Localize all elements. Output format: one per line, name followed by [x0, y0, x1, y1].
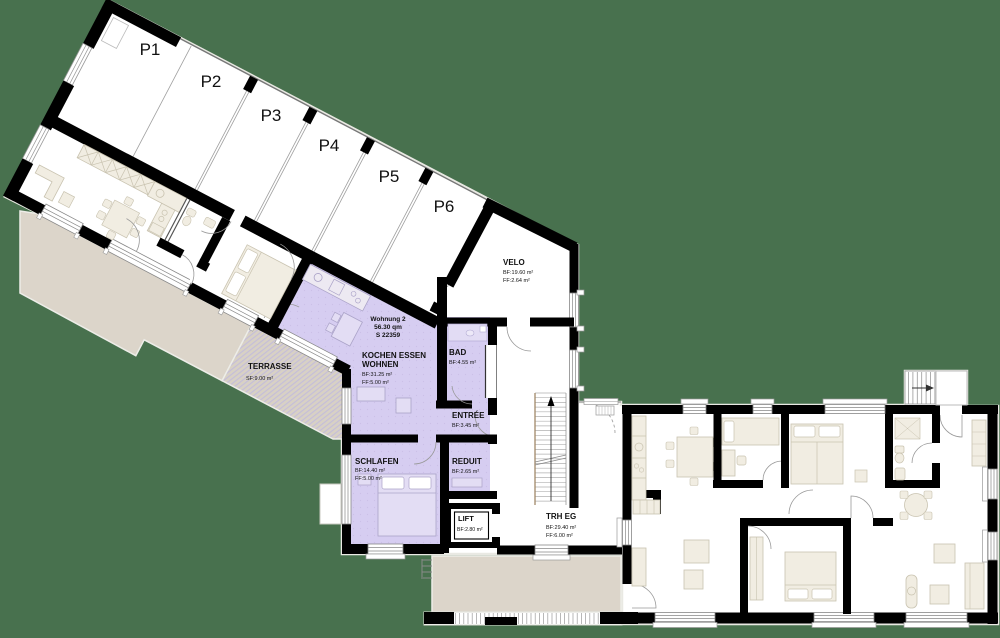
svg-text:Wohnung 2: Wohnung 2: [370, 316, 406, 323]
svg-text:BF:4.55 m²: BF:4.55 m²: [449, 360, 476, 366]
svg-text:56.30 qm: 56.30 qm: [374, 324, 402, 331]
svg-text:TRH EG: TRH EG: [546, 512, 576, 521]
svg-text:P6: P6: [434, 197, 455, 216]
svg-text:P1: P1: [140, 40, 161, 59]
svg-text:SCHLAFEN: SCHLAFEN: [355, 457, 399, 466]
svg-text:BF:2.65 m²: BF:2.65 m²: [452, 469, 479, 475]
svg-text:BF:3.45 m²: BF:3.45 m²: [452, 423, 479, 429]
svg-text:P3: P3: [261, 106, 282, 125]
svg-text:FF:5.00 m²: FF:5.00 m²: [355, 476, 382, 482]
svg-text:REDUIT: REDUIT: [452, 457, 482, 466]
svg-text:ENTRÉE: ENTRÉE: [452, 411, 485, 420]
svg-text:FF:5.00 m²: FF:5.00 m²: [362, 380, 389, 386]
svg-text:S 22359: S 22359: [376, 332, 401, 339]
svg-text:SF:9.00 m²: SF:9.00 m²: [246, 376, 273, 382]
svg-text:VELO: VELO: [503, 258, 525, 267]
svg-text:BF:14.40 m²: BF:14.40 m²: [355, 468, 385, 474]
svg-text:BF:31.25 m²: BF:31.25 m²: [362, 372, 392, 378]
svg-text:TERRASSE: TERRASSE: [248, 362, 292, 371]
svg-text:LIFT: LIFT: [458, 514, 474, 523]
svg-text:BF:2.80 m²: BF:2.80 m²: [457, 527, 483, 533]
svg-text:KOCHEN ESSEN: KOCHEN ESSEN: [362, 351, 426, 360]
svg-text:BF:19.60 m²: BF:19.60 m²: [503, 270, 533, 276]
svg-text:P2: P2: [201, 72, 222, 91]
svg-text:BF:29.40 m²: BF:29.40 m²: [546, 525, 576, 531]
svg-text:P4: P4: [319, 136, 340, 155]
svg-text:FF:2.64 m²: FF:2.64 m²: [503, 278, 530, 284]
svg-text:FF:6.00 m²: FF:6.00 m²: [546, 533, 573, 539]
svg-text:P5: P5: [379, 167, 400, 186]
svg-text:BAD: BAD: [449, 348, 467, 357]
svg-text:WOHNEN: WOHNEN: [362, 360, 399, 369]
